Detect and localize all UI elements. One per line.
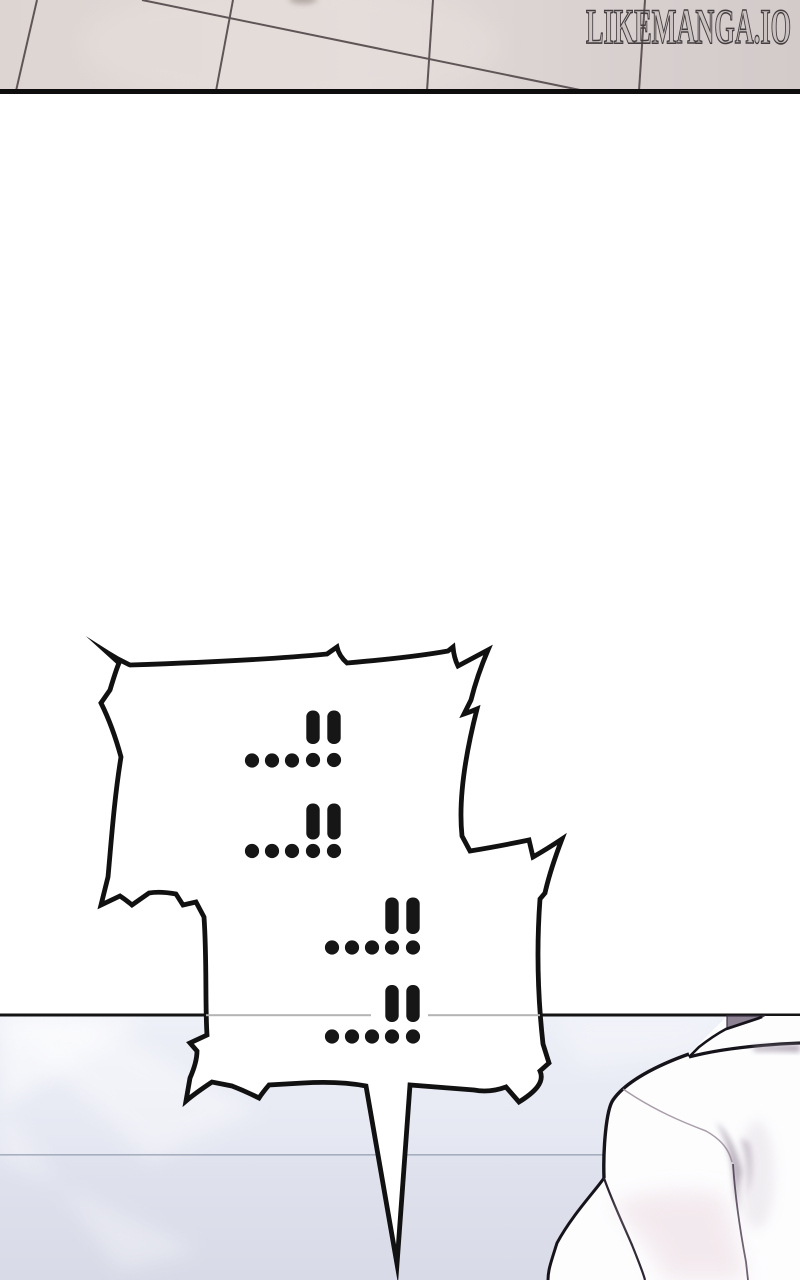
svg-text:LIKEMANGA.IO: LIKEMANGA.IO — [586, 0, 791, 54]
